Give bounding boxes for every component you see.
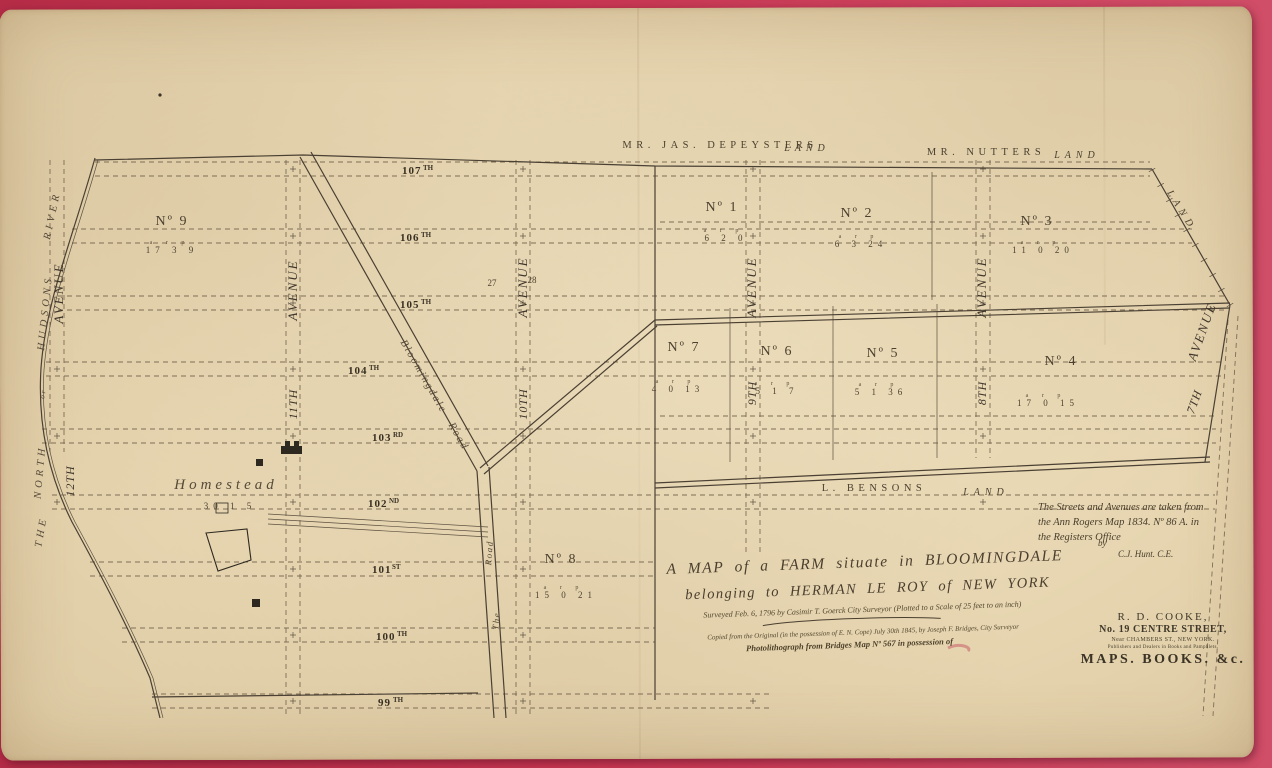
plot-acreage-no2: 6 3 24 [835, 239, 888, 249]
bloomingdale-road-label: Bloomingdale [398, 338, 449, 415]
plot-acreage-no1: 6 2 0 [705, 233, 748, 243]
avenue-label-11th: 11TH [286, 388, 300, 419]
plot-label-no3: Nº 3 [1021, 214, 1054, 229]
avenue-label-12th: 12TH [63, 465, 77, 497]
street-suffix-107th: TH [423, 164, 434, 172]
plot-acreage-no3: 11 0 20 [1012, 245, 1074, 255]
street-labels: 107 TH 106 TH 105 TH 104 TH 103 RD 102 N… [348, 164, 434, 709]
the-road-word-the: The [490, 611, 501, 630]
depeyster-land-word: LAND [783, 143, 830, 154]
street-label-107th: 107 [402, 165, 422, 177]
plot-acreage-no8: 15 0 21 [535, 590, 597, 600]
avenue-label-8th: 8TH [975, 380, 989, 405]
homestead-buildings [206, 441, 302, 607]
plot-acreage-no6: 5 1 7 [756, 386, 799, 396]
plot-label-no9: Nº 9 [156, 214, 189, 229]
street-suffix-102nd: ND [389, 497, 399, 505]
benson-land-label: L. BENSONS [822, 483, 927, 494]
publisher-products: MAPS. BOOKS. &c. [1081, 652, 1246, 667]
map-title-line3: Surveyed Feb. 6, 1796 by Casimir T. Goer… [703, 600, 1022, 620]
publisher-address2: Near CHAMBERS ST., NEW YORK. [1111, 637, 1214, 643]
avenue-word-9th: AVENUE [744, 256, 759, 318]
title-block: A MAP of a FARM situate in BLOOMINGDALE … [665, 547, 1066, 656]
survey-note-line1: The Streets and Avenues are taken from [1038, 502, 1204, 513]
shoreline-inner [43, 160, 163, 718]
street-suffix-106th: TH [421, 231, 432, 239]
street-label-105th: 105 [400, 299, 420, 311]
street-label-101st: 101 [372, 564, 392, 576]
survey-note-by: by [1098, 538, 1107, 548]
east-farm-boundary-line [1152, 169, 1230, 462]
river-word-the: THE [33, 515, 49, 548]
avenue-labels: AVENUE 12TH AVENUE 11TH AVENUE 10TH AVEN… [51, 256, 1219, 496]
homestead-label: Homestead [173, 477, 278, 493]
publisher-address: No. 19 CENTRE STREET, [1099, 624, 1227, 635]
avenue-word-8th: AVENUE [974, 256, 989, 318]
map-title-line1: A MAP of a FARM situate in BLOOMINGDALE [665, 547, 1063, 578]
street-label-100th: 100 [376, 631, 396, 643]
homestead-lane-lines [268, 514, 488, 537]
plot-row-top-line [655, 303, 1230, 325]
avenue-label-7th: 7TH [1184, 387, 1206, 415]
road-south-lines [477, 467, 506, 718]
benson-land-word: LAND [962, 487, 1009, 498]
surveyor-signature: C.J. Hunt. C.E. [1118, 549, 1173, 559]
plot-label-no2: Nº 2 [841, 206, 874, 221]
plot-acreage-no7: 4 0 13 [652, 384, 705, 394]
farm-map-drawing: 107 TH 106 TH 105 TH 104 TH 103 RD 102 N… [0, 0, 1272, 768]
lot-number-28: 28 [528, 275, 538, 285]
plot-label-no8: Nº 8 [545, 552, 578, 567]
survey-note-line2: the Ann Rogers Map 1834. Nº 86 A. in [1038, 517, 1199, 528]
road-junction-line [480, 320, 657, 474]
avenue-word-11th: AVENUE [285, 259, 300, 321]
river-word-or: or [38, 388, 48, 399]
map-title-line2: belonging to HERMAN LE ROY of NEW YORK [685, 575, 1050, 604]
street-label-99th: 99 [378, 697, 391, 709]
street-label-106th: 106 [400, 232, 420, 244]
plot-row-bottom-line [655, 457, 1210, 488]
shoreline [40, 158, 160, 718]
lot-number-27: 27 [488, 278, 498, 288]
plot-label-no7: Nº 7 [668, 340, 701, 355]
street-label-102nd: 102 [368, 498, 388, 510]
plot-label-no5: Nº 5 [867, 346, 900, 361]
avenue-word-12th: AVENUE [51, 262, 66, 324]
plot-label-no1: Nº 1 [706, 200, 739, 215]
avenue-label-10th: 10TH [516, 388, 530, 420]
street-label-103rd: 103 [372, 432, 392, 444]
nutter-land-word: LAND [1053, 150, 1100, 161]
bloomingdale-road-word: Road [445, 420, 470, 452]
map-sheet-photo: 107 TH 106 TH 105 TH 104 TH 103 RD 102 N… [0, 0, 1272, 768]
publisher-tagline: Publishers and Dealers in Books and Pamp… [1108, 645, 1219, 650]
road-labels: Bloomingdale Road Road The [398, 338, 502, 630]
river-word-north: NORTH [33, 444, 49, 500]
street-suffix-100th: TH [397, 630, 408, 638]
homestead-acreage: 30 1 5 [204, 501, 257, 511]
plot-label-no6: Nº 6 [761, 344, 794, 359]
the-road-word-road: Road [483, 540, 495, 567]
survey-note: The Streets and Avenues are taken from t… [1038, 502, 1204, 559]
street-suffix-101st: ST [392, 563, 401, 571]
avenue-word-10th: AVENUE [515, 256, 530, 318]
northeast-land-word: LAND [1164, 188, 1198, 233]
red-pencil-mark [948, 645, 969, 651]
street-suffix-103rd: RD [393, 431, 403, 439]
street-suffix-105th: TH [421, 298, 432, 306]
bloomingdale-road-lines [300, 152, 488, 471]
publisher-name: R. D. COOKE, [1118, 611, 1209, 623]
street-suffix-104th: TH [369, 364, 380, 372]
survey-note-line3: the Registers Office [1038, 532, 1121, 543]
plot-acreage-no9: 17 3 9 [146, 245, 199, 255]
title-flourish [763, 616, 941, 626]
street-suffix-99th: TH [393, 696, 404, 704]
plot-acreage-no5: 5 1 36 [855, 387, 908, 397]
plot-acreage-no4: 17 0 15 [1017, 398, 1079, 408]
river-word-river: RIVER [42, 190, 63, 241]
publisher-imprint: R. D. COOKE, No. 19 CENTRE STREET, Near … [1081, 611, 1246, 667]
ink-speck [158, 93, 161, 96]
nutter-land-label: MR. NUTTERS [927, 147, 1045, 158]
plot-label-no4: Nº 4 [1045, 354, 1078, 369]
street-label-104th: 104 [348, 365, 368, 377]
